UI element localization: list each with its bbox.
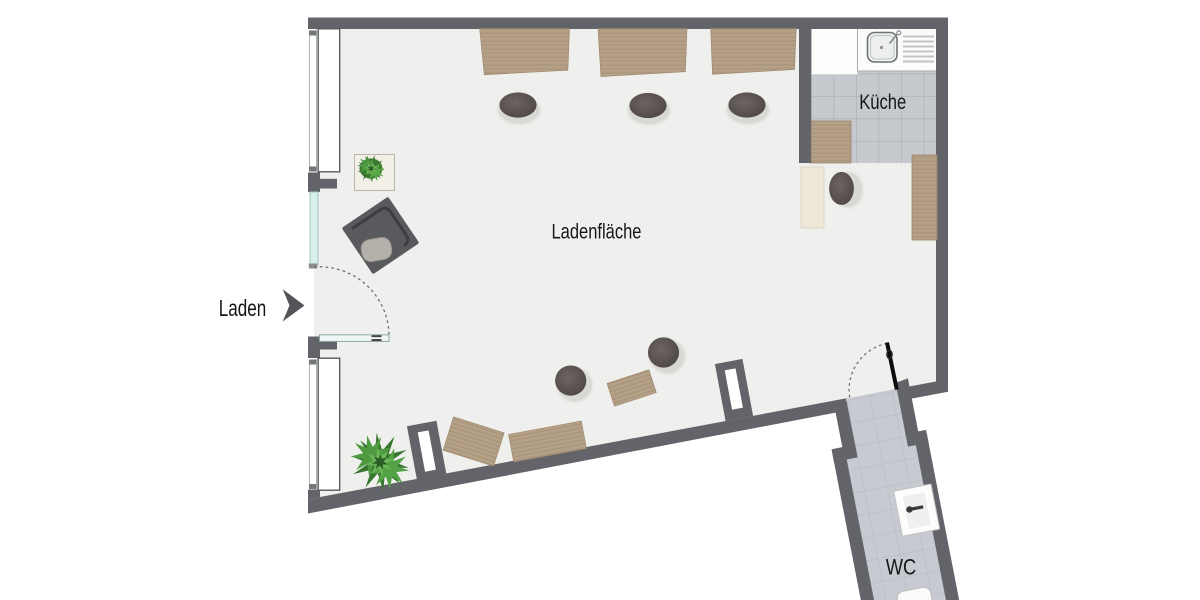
svg-text:Küche: Küche (859, 91, 906, 114)
svg-text:WC: WC (886, 555, 917, 580)
svg-text:Laden: Laden (219, 295, 267, 321)
svg-text:Ladenfläche: Ladenfläche (552, 221, 642, 244)
